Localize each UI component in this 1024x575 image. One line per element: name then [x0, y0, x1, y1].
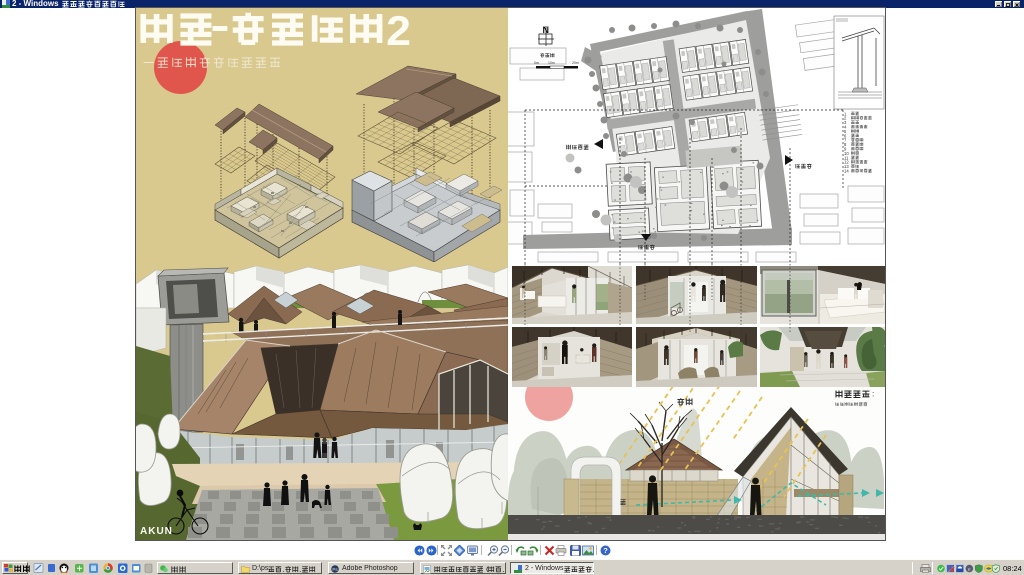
svg-text:2: 2 — [386, 12, 411, 48]
svg-text:20m: 20m — [572, 61, 579, 65]
svg-text:N: N — [543, 25, 550, 35]
svg-text:?: ? — [603, 546, 608, 555]
svg-text:AKUN: AKUN — [140, 526, 173, 537]
svg-text:Ps: Ps — [332, 567, 338, 572]
svg-text:14: 14 — [844, 169, 849, 174]
svg-text:10m: 10m — [548, 61, 555, 65]
svg-text:0m: 0m — [534, 61, 539, 65]
svg-text:e: e — [968, 566, 971, 572]
